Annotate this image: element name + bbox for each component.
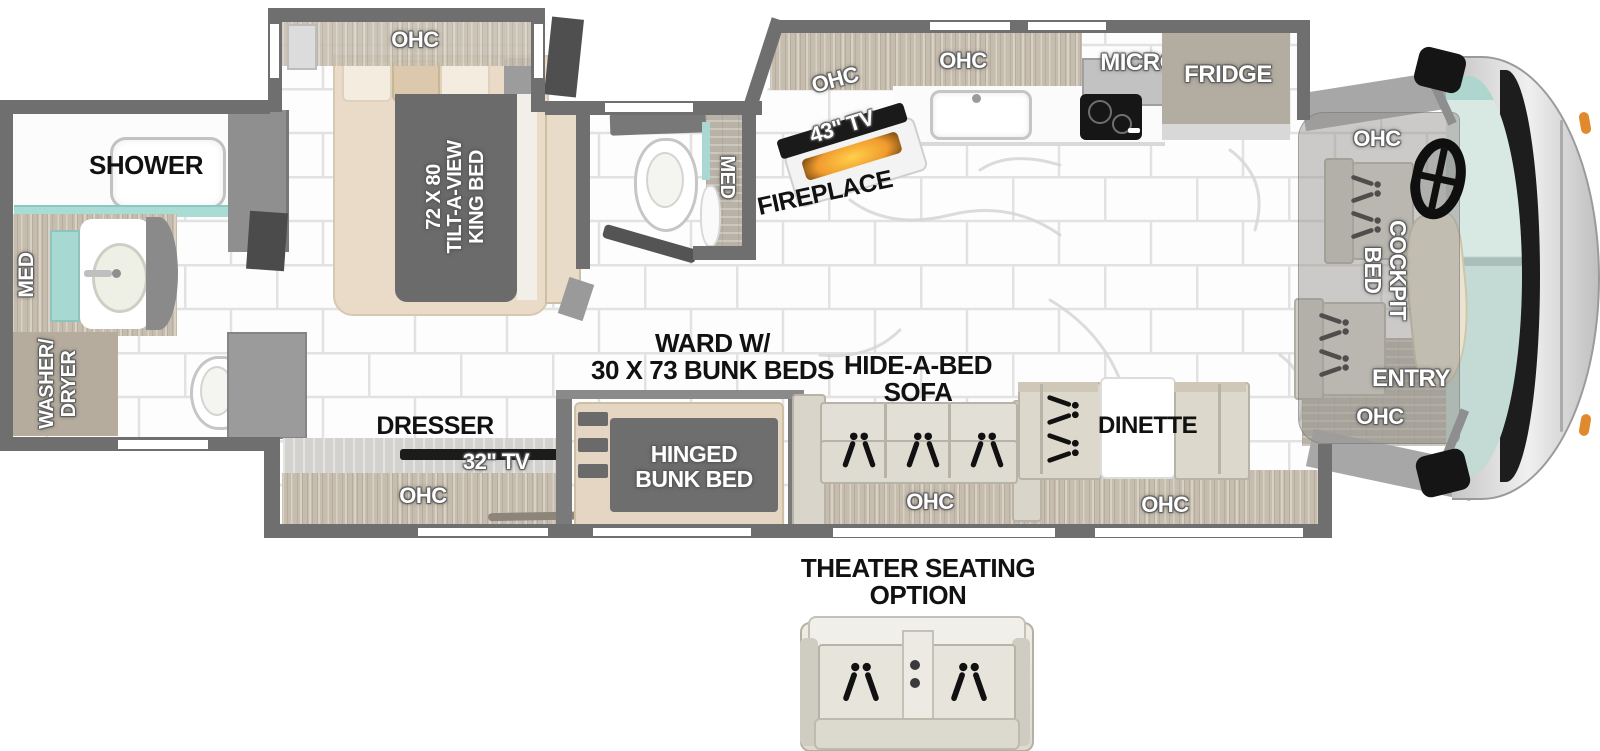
wall-rear-top (0, 100, 270, 114)
sofa-seat-seam-2 (948, 442, 951, 478)
fridge-front-edge (1162, 124, 1290, 140)
entry-label: ENTRY (1366, 366, 1456, 392)
bunk-ladder-3 (578, 464, 608, 478)
kitchen-ohc-center-label: OHC (923, 49, 1003, 73)
bunk-slide-wall-left (556, 390, 572, 536)
bunk-label: HINGED BUNK BED (614, 442, 774, 492)
med-cabinet-label: MED (16, 243, 42, 307)
sofa-label: HIDE-A-BED SOFA (818, 352, 1018, 407)
vanity-sink (92, 243, 148, 313)
window-marker (833, 528, 1055, 537)
theater-front-skirt (814, 718, 1020, 750)
king-bed-label: 72 X 80 TILT-A-VIEW KING BED (395, 92, 517, 302)
fridge-label: FRIDGE (1173, 62, 1283, 88)
window-marker (605, 103, 693, 112)
seatbelt-icon (902, 430, 944, 470)
kitchen-sink (930, 90, 1032, 140)
dresser-label: DRESSER (345, 413, 525, 439)
bunk-slide-rail (556, 390, 804, 399)
floorplan-canvas: SHOWER MED WASHER/ DRYER 72 X 80 TILT-A-… (0, 0, 1600, 751)
dinette-right-seam (1218, 384, 1221, 474)
dinette-bench-right-cap (1174, 382, 1246, 392)
wall-rear-left (0, 100, 13, 450)
bedroom-tv (246, 211, 288, 272)
dinette-label: DINETTE (1098, 413, 1194, 438)
seatbelt-icon (838, 430, 880, 470)
sofa-back-seam-2 (948, 404, 951, 440)
bunk-ladder-2 (578, 438, 608, 452)
rear-wardrobe (227, 332, 307, 439)
bedroom-ohc-label: OHC (375, 28, 455, 52)
seatbelt-icon (838, 660, 884, 704)
dresser-ohc-label: OHC (395, 484, 451, 508)
seatbelt-icon (966, 430, 1008, 470)
window-marker (270, 24, 279, 78)
ward-bunk-label: WARD W/ 30 X 73 BUNK BEDS (570, 330, 855, 385)
seatbelt-icon (1045, 391, 1081, 429)
king-bed-pillow-1 (342, 60, 392, 102)
theater-cupholder-2 (910, 678, 920, 688)
dinette-ohc-label: OHC (1137, 493, 1193, 517)
cooktop-handle (1128, 128, 1140, 133)
cockpit-ohc-bottom-label: OHC (1350, 405, 1410, 429)
med-mirror (50, 230, 80, 322)
sofa-back-seam-1 (884, 404, 887, 440)
vanity-faucet-dot (112, 269, 121, 278)
seatbelt-icon (1045, 429, 1081, 467)
king-bed-sheet (517, 94, 537, 300)
wall-bath-right (742, 101, 756, 253)
shower-label: SHOWER (86, 152, 206, 179)
window-marker (1028, 22, 1106, 30)
wall-entry-vertical (1318, 444, 1332, 538)
cockpit-ohc-top-label: OHC (1347, 127, 1407, 151)
bedroom-slide-window (287, 24, 317, 70)
wall-step-vertical (264, 437, 280, 538)
bunk-ladder-1 (578, 412, 608, 426)
cab-nose-seam (1560, 120, 1563, 432)
cooktop-burner-1 (1088, 100, 1112, 124)
wall-bath-stub (693, 246, 756, 260)
theater-cupholder-1 (910, 660, 920, 670)
dinette-left-seam (1040, 384, 1043, 474)
seatbelt-icon (946, 660, 992, 704)
washer-dryer-label: WASHER/ DRYER (37, 330, 89, 438)
window-marker (118, 440, 208, 449)
wall-bed-slide-top (268, 8, 545, 22)
sofa-ohc-label: OHC (902, 490, 958, 514)
cockpit-bed-label: COCKPIT BED (1356, 205, 1410, 335)
window-marker (1095, 528, 1303, 537)
window-marker (418, 528, 548, 536)
mid-toilet-seat (646, 152, 684, 208)
window-marker (593, 528, 751, 536)
mid-bath-med-glass (702, 122, 710, 180)
mid-bath-med-label: MED (711, 145, 737, 209)
wall-bath-left (576, 101, 590, 269)
vanity-faucet (84, 270, 112, 277)
kitchen-faucet (972, 94, 981, 103)
wall-kitchen-right (1297, 20, 1310, 120)
sofa-seat-seam-1 (884, 442, 887, 478)
window-marker (930, 22, 1010, 30)
theater-option-label: THEATER SEATING OPTION (768, 555, 1068, 610)
theater-seating-unit (800, 616, 1030, 750)
tv-32-label: 32" TV (436, 450, 556, 474)
window-marker (534, 24, 543, 78)
